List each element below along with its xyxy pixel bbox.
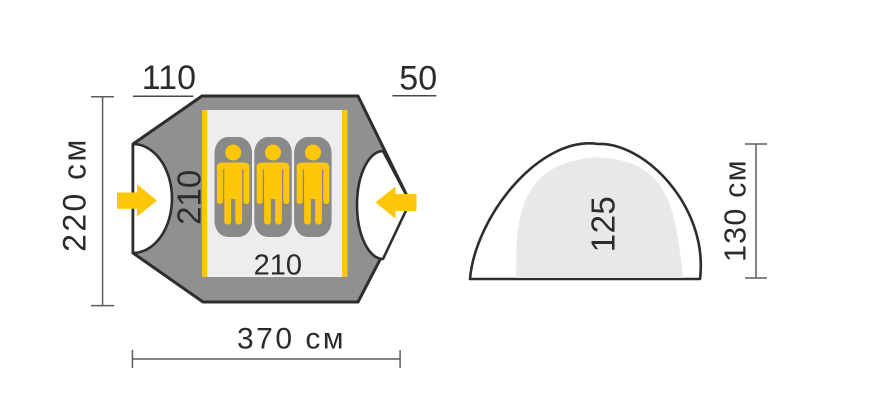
svg-text:110: 110 [142,59,196,97]
svg-text:50: 50 [399,60,437,98]
svg-text:130 см: 130 см [719,159,753,262]
svg-text:125: 125 [584,196,621,253]
svg-text:210: 210 [254,250,302,282]
svg-text:210: 210 [170,170,207,225]
svg-text:220 см: 220 см [57,137,93,252]
svg-text:370 см: 370 см [237,323,346,356]
